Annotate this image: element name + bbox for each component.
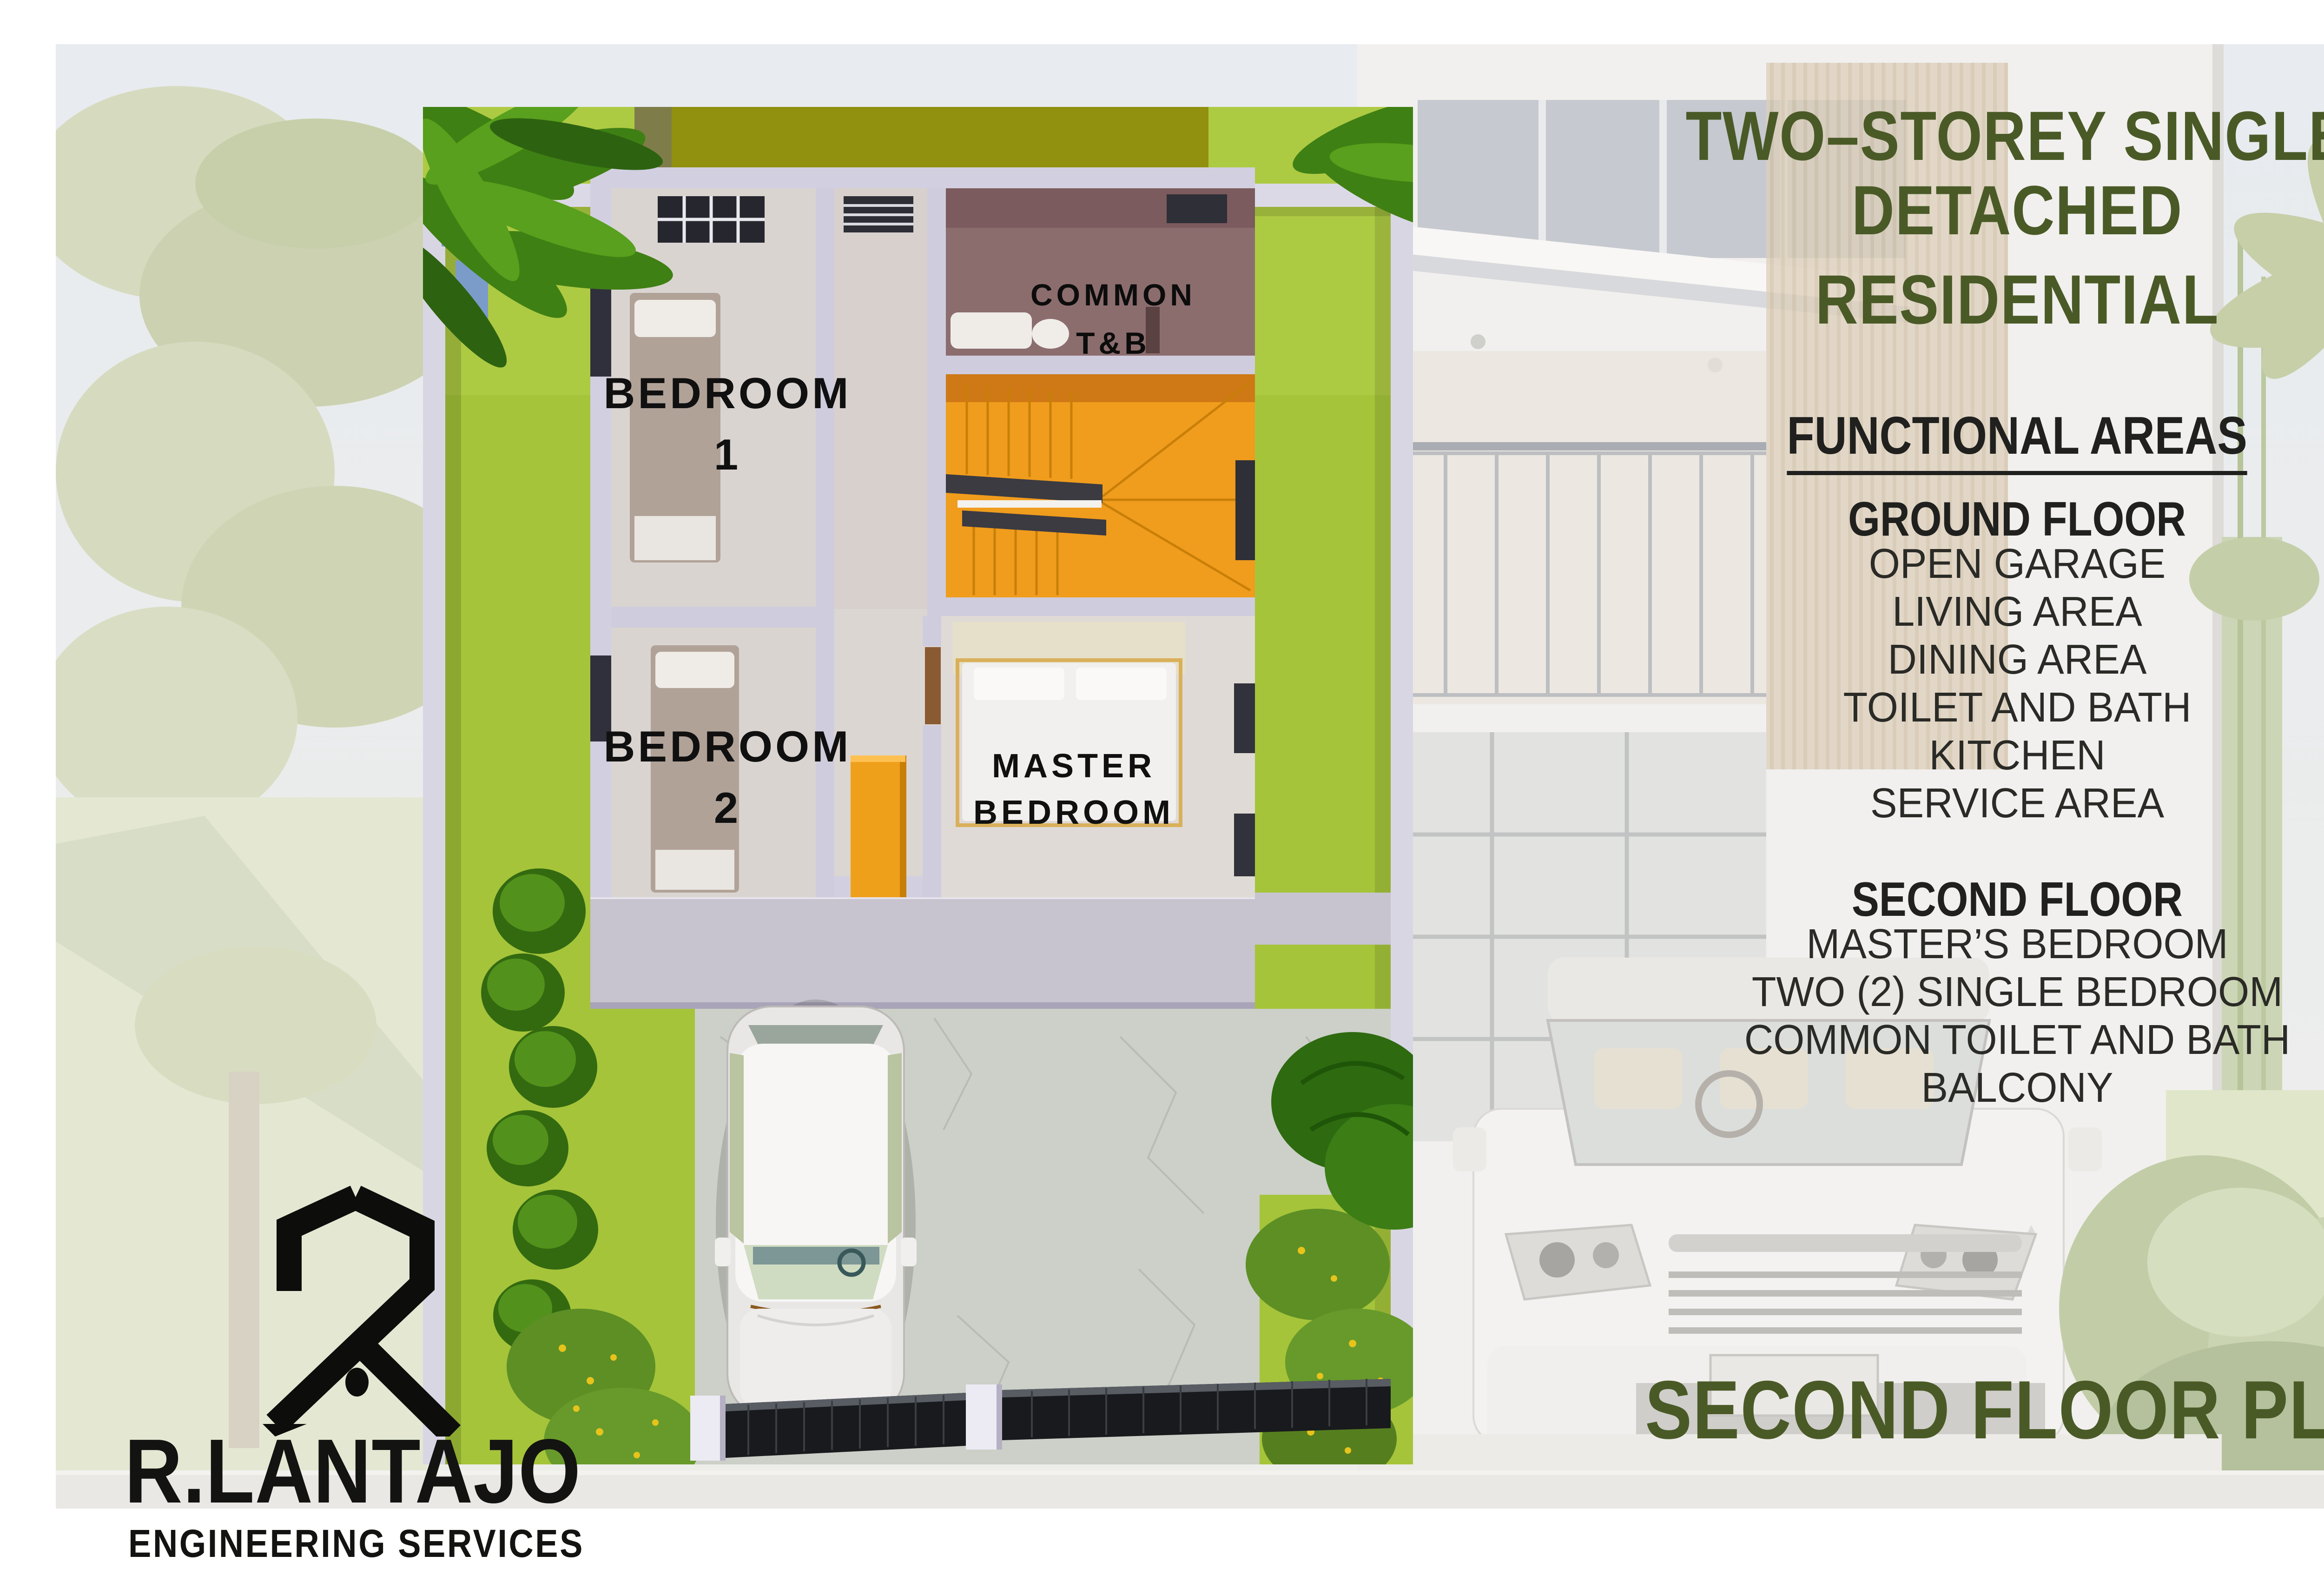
room-label-line: 1 (553, 424, 902, 485)
logo-name: R.LANTAJO (125, 1419, 775, 1523)
room-label-line: BEDROOM (939, 789, 1208, 836)
title-line-1: TWO–STOREY SINGLE DETACHED (1506, 99, 2324, 247)
page-title: TWO–STOREY SINGLE DETACHED RESIDENTIAL (1506, 99, 2324, 337)
list-item: SERVICE AREA (1571, 780, 2324, 828)
stair-window (1235, 460, 1255, 560)
ground-floor-heading: GROUND FLOOR (1552, 492, 2324, 547)
logo-tagline: ENGINEERING SERVICES (128, 1521, 779, 1566)
door-leaf (925, 647, 941, 724)
list-item: MASTER’S BEDROOM (1571, 920, 2324, 968)
logo-dot (345, 1368, 369, 1397)
tb-window (1167, 194, 1227, 223)
room-label-line: COMMON (990, 271, 1236, 319)
staircase (946, 374, 1255, 597)
list-item: TOILET AND BATH (1571, 684, 2324, 732)
list-item: LIVING AREA (1571, 588, 2324, 636)
ground-floor-list: OPEN GARAGE LIVING AREA DINING AREA TOIL… (1552, 540, 2324, 828)
list-item: TWO (2) SINGLE BEDROOM (1571, 968, 2324, 1016)
car-top-view (715, 1000, 917, 1446)
room-label-line: BEDROOM (553, 363, 902, 424)
room-label-line: BEDROOM (553, 716, 902, 777)
room-label-line: T&B (990, 319, 1236, 367)
list-item: COMMON TOILET AND BATH (1571, 1016, 2324, 1064)
room-label-line: MASTER (939, 743, 1208, 789)
window (1234, 683, 1255, 753)
window (1234, 814, 1255, 876)
second-floor-list: MASTER’S BEDROOM TWO (2) SINGLE BEDROOM … (1552, 920, 2324, 1112)
logo-mark-icon (242, 1183, 474, 1437)
presentation-slide: BEDROOM 1 BEDROOM 2 COMMON T&B MASTER BE… (0, 0, 2324, 1569)
room-label-bedroom-1: BEDROOM 1 (553, 363, 902, 485)
room-label-bedroom-2: BEDROOM 2 (553, 716, 902, 839)
list-item: BALCONY (1571, 1064, 2324, 1112)
list-item: KITCHEN (1571, 732, 2324, 780)
room-label-line: 2 (553, 777, 902, 839)
second-floor-heading: SECOND FLOOR (1552, 872, 2324, 927)
room-label-master-bedroom: MASTER BEDROOM (939, 743, 1208, 836)
room-label-common-tb: COMMON T&B (990, 271, 1236, 367)
plan-caption: SECOND FLOOR PLAN (1506, 1362, 2324, 1457)
functional-areas-heading: FUNCTIONAL AREAS (1552, 405, 2324, 466)
title-line-2: RESIDENTIAL (1506, 262, 2324, 337)
list-item: OPEN GARAGE (1571, 540, 2324, 588)
list-item: DINING AREA (1571, 636, 2324, 684)
